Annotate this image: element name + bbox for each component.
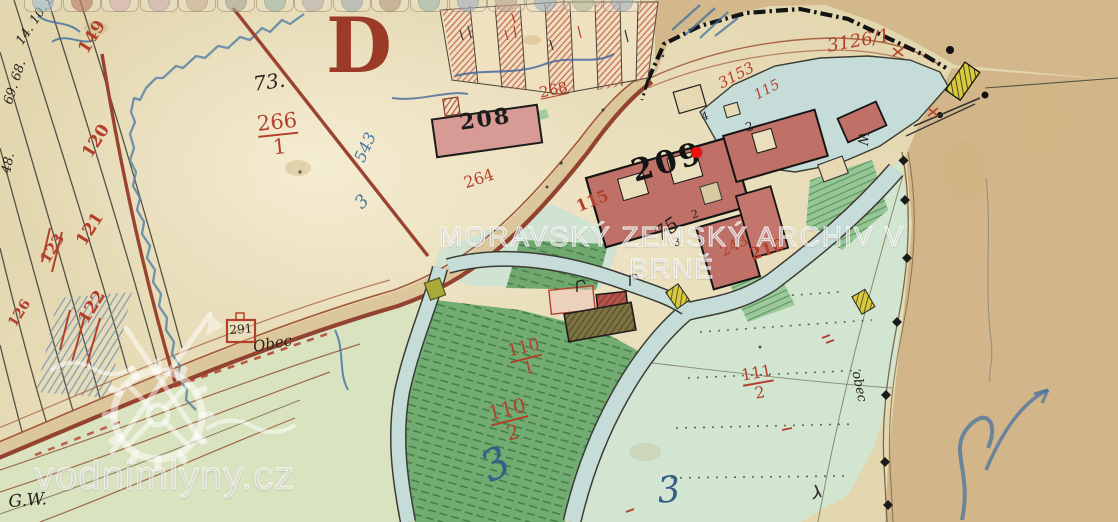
toolbar-button-icon bbox=[341, 0, 363, 12]
hatched-strips-block bbox=[392, 2, 658, 99]
toolbar-button-icon bbox=[572, 0, 594, 12]
toolbar-button-icon bbox=[186, 0, 208, 12]
parcel-208: 208 bbox=[458, 105, 512, 134]
toolbar-button-icon bbox=[418, 0, 440, 12]
toolbar-button-14[interactable] bbox=[526, 0, 564, 12]
toolbar-button-5[interactable] bbox=[178, 0, 216, 12]
toolbar-button-16[interactable] bbox=[603, 0, 641, 12]
toolbar-button-icon bbox=[225, 0, 247, 12]
site-watermark-text: vodnimlyny.cz bbox=[34, 454, 295, 499]
toolbar-button-icon bbox=[611, 0, 633, 12]
archive-watermark: MORAVSKÝ ZEMSKÝ ARCHIV V BRNĚ bbox=[392, 221, 952, 285]
note-3-blue-c: 3 bbox=[656, 472, 682, 510]
toolbar-button-icon bbox=[302, 0, 324, 12]
map-marker-dot[interactable] bbox=[691, 147, 702, 158]
toolbar-button-12[interactable] bbox=[449, 0, 487, 12]
toolbar-button-icon bbox=[109, 0, 131, 12]
toolbar-button-3[interactable] bbox=[101, 0, 139, 12]
toolbar-button-2[interactable] bbox=[63, 0, 101, 12]
toolbar-button-icon bbox=[534, 0, 556, 12]
toolbar-button-13[interactable] bbox=[487, 0, 525, 12]
toolbar-button-15[interactable] bbox=[564, 0, 602, 12]
toolbar-button-icon bbox=[457, 0, 479, 12]
toolbar-button-7[interactable] bbox=[256, 0, 294, 12]
toolbar-button-4[interactable] bbox=[140, 0, 178, 12]
parcel-266-1: 2661 bbox=[256, 110, 301, 160]
toolbar-button-9[interactable] bbox=[333, 0, 371, 12]
parcel-111-2: 1112 bbox=[740, 363, 776, 404]
note-w: W bbox=[855, 131, 870, 147]
toolbar-button-icon bbox=[71, 0, 93, 12]
toolbar-button-11[interactable] bbox=[410, 0, 448, 12]
toolbar-button-icon bbox=[264, 0, 286, 12]
map-viewport[interactable]: 14912012112312212614. 10. 9.69. 68.48.73… bbox=[0, 0, 1118, 522]
note-48: 48. bbox=[0, 152, 17, 175]
toolbar-button-1[interactable] bbox=[24, 0, 62, 12]
toolbar-button-icon bbox=[495, 0, 517, 12]
toolbar-button-8[interactable] bbox=[294, 0, 332, 12]
toolbar-button-icon bbox=[148, 0, 170, 12]
section-letter-d: D bbox=[326, 8, 392, 84]
toolbar-button-6[interactable] bbox=[217, 0, 255, 12]
toolbar-button-icon bbox=[32, 0, 54, 12]
note-73: 73. bbox=[252, 70, 286, 94]
toolbar-button-icon bbox=[379, 0, 401, 12]
toolbar-button-10[interactable] bbox=[371, 0, 409, 12]
